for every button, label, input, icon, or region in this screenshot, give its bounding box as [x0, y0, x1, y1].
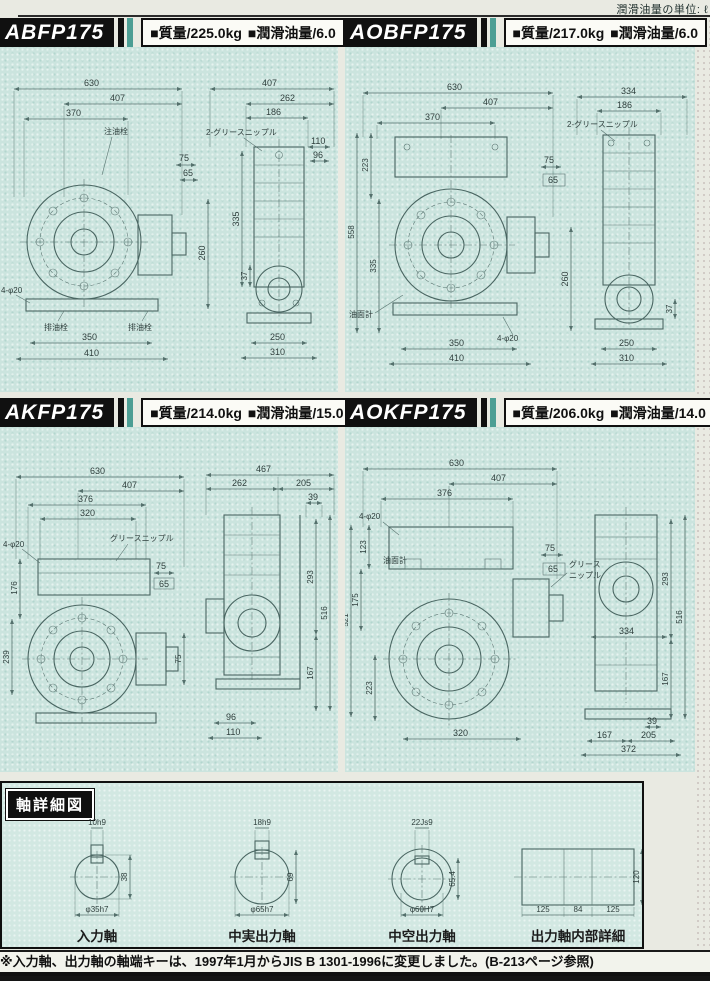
oil-label: ■潤滑油量/15.0	[248, 403, 344, 423]
top-divider	[18, 15, 710, 17]
dim-label: 410	[84, 348, 99, 358]
dim-label: 75	[156, 561, 166, 571]
dim-label: 186	[617, 100, 632, 110]
dim-label: 125	[606, 905, 620, 914]
header-bar-teal	[127, 18, 133, 47]
dim-label: 558	[347, 225, 356, 239]
dim-label: 310	[270, 347, 285, 357]
holes-label: 4-φ20	[3, 540, 25, 549]
front-view: 630 407 370 注油栓 75 65 260 排油栓 排油栓 350 41…	[1, 78, 208, 359]
mass-label: ■質量/217.0kg	[513, 23, 605, 43]
dim-label: 167	[597, 730, 612, 740]
dim-label: 320	[80, 508, 95, 518]
dim-label: 65	[548, 564, 558, 574]
dim-label: 96	[313, 150, 323, 160]
front-view: 630 407 376 320 グリースニップル 4-φ20 176 239 7…	[2, 466, 184, 723]
dim-label: 521	[345, 613, 350, 627]
dim-label: 410	[449, 353, 464, 363]
shaft-label: 出力軸内部詳細	[531, 928, 626, 944]
model-name: AOBFP175	[345, 18, 477, 47]
dim-label: 65	[159, 579, 169, 589]
grease-nipple-label: 2-グリースニップル	[206, 127, 277, 137]
dim-label: 407	[122, 480, 137, 490]
side-view: 334 186 2-グリースニップル 37 250 310	[567, 86, 687, 364]
grease-nipple-label: グリース	[569, 559, 601, 569]
dim-label: 65.4	[448, 871, 457, 887]
dim-label: 370	[66, 108, 81, 118]
dim-label: 75	[545, 543, 555, 553]
side-view: 467 262 205 39 293 516 167 96 110	[206, 464, 334, 738]
dim-label: 630	[84, 78, 99, 88]
header-bar-black	[118, 18, 124, 47]
model-name: ABFP175	[0, 18, 114, 47]
dim-label: 69	[286, 872, 295, 881]
shaft-diagrams: 10h9 38 φ35h7 入力軸 18h9 69	[2, 815, 642, 947]
dim-label: 407	[110, 93, 125, 103]
oil-label: ■潤滑油量/6.0	[610, 23, 698, 43]
dim-label: 223	[365, 681, 374, 695]
dim-label: 260	[560, 271, 570, 286]
dim-label: 110	[226, 727, 240, 737]
input-shaft-diagram: 10h9 38 φ35h7 入力軸	[70, 818, 132, 944]
dim-label: 223	[361, 158, 370, 172]
dim-label: φ60H7	[410, 905, 435, 914]
front-view: 630 407 370 223 558 335 75 65 260 油面計 4-…	[347, 82, 571, 364]
dim-label: 120	[632, 870, 641, 884]
dim-label: 467	[256, 464, 271, 474]
drawing-panel-abfp175: 630 407 370 注油栓 75 65 260 排油栓 排油栓 350 41…	[0, 47, 338, 392]
dim-label: 407	[491, 473, 506, 483]
drain-plug-label: 排油栓	[128, 322, 152, 332]
dim-label: 22Js9	[411, 818, 433, 827]
mass-label: ■質量/214.0kg	[150, 403, 242, 423]
dim-label: 376	[78, 494, 93, 504]
oil-fill-plug-label: 注油栓	[104, 126, 128, 136]
drawing-panel-aokfp175: 630 407 376 4-φ20 油面計 123 175 521 223 75…	[345, 427, 695, 772]
spec-box: ■質量/225.0kg ■潤滑油量/6.0	[141, 18, 345, 47]
shaft-detail-section: 軸詳細図 10h9 38 φ35h7 入力軸 18h9	[0, 781, 644, 949]
dim-label: φ65h7	[251, 905, 275, 914]
dim-label: 334	[619, 626, 634, 636]
dim-label: 350	[449, 338, 464, 348]
dim-label: 250	[270, 332, 285, 342]
footnote: ※入力軸、出力軸の軸端キーは、1997年1月からJIS B 1301-1996に…	[0, 950, 710, 976]
dim-label: 96	[226, 712, 236, 722]
dim-label: 84	[574, 905, 583, 914]
dim-label: 516	[320, 606, 329, 620]
dim-label: 335	[231, 211, 241, 226]
shaft-label: 中空出力軸	[388, 928, 456, 944]
page-bottom-edge	[0, 976, 710, 981]
dim-label: 630	[90, 466, 105, 476]
drain-plug-label: 排油栓	[44, 322, 68, 332]
dim-label: 10h9	[88, 818, 106, 827]
dim-label: 350	[82, 332, 97, 342]
dim-label: 123	[359, 540, 368, 554]
akfp175-drawing: 630 407 376 320 グリースニップル 4-φ20 176 239 7…	[0, 427, 338, 772]
model-header-aokfp175: AOKFP175 ■質量/206.0kg ■潤滑油量/14.0	[345, 398, 710, 427]
dim-label: 334	[621, 86, 636, 96]
dim-label: 376	[437, 488, 452, 498]
dim-label: 250	[619, 338, 634, 348]
solid-output-shaft-diagram: 18h9 69 φ65h7 中実出力軸	[228, 818, 296, 944]
grease-nipple-label: 2-グリースニップル	[567, 119, 638, 129]
dim-label: 65	[548, 175, 558, 185]
dim-label: 186	[266, 107, 281, 117]
dim-label: 167	[661, 672, 670, 686]
header-bar-black	[481, 18, 487, 47]
header-bar-black	[481, 398, 487, 427]
model-name: AKFP175	[0, 398, 114, 427]
dim-label: 335	[369, 259, 378, 273]
dim-label: 167	[306, 666, 315, 680]
holes-label: 4-φ20	[1, 286, 23, 295]
dim-label: 407	[483, 97, 498, 107]
grease-nipple-label: グリースニップル	[110, 533, 174, 543]
header-bar-teal	[490, 398, 496, 427]
dim-label: 75	[544, 155, 554, 165]
dim-label: 75	[174, 654, 183, 663]
dim-label: 176	[10, 581, 19, 595]
page-right-margin	[695, 18, 710, 950]
shaft-label: 中実出力軸	[228, 928, 296, 944]
mass-label: ■質量/206.0kg	[513, 403, 605, 423]
dim-label: 75	[179, 153, 189, 163]
header-bar-black	[118, 398, 124, 427]
header-bar-teal	[127, 398, 133, 427]
shaft-label: 入力軸	[77, 928, 118, 944]
oil-label: ■潤滑油量/14.0	[610, 403, 706, 423]
dim-label: 175	[351, 593, 360, 607]
dim-label: 260	[197, 245, 207, 260]
dim-label: 262	[232, 478, 247, 488]
model-header-akfp175: AKFP175 ■質量/214.0kg ■潤滑油量/15.0	[0, 398, 353, 427]
model-header-aobfp175: AOBFP175 ■質量/217.0kg ■潤滑油量/6.0	[345, 18, 707, 47]
dim-label: 205	[296, 478, 311, 488]
dim-label: 39	[308, 492, 318, 502]
dim-label: 65	[183, 168, 193, 178]
spec-box: ■質量/206.0kg ■潤滑油量/14.0	[504, 398, 710, 427]
side-view: 407 262 186 2-グリースニップル 110 96 335 37 250…	[206, 78, 334, 358]
model-header-abfp175: ABFP175 ■質量/225.0kg ■潤滑油量/6.0	[0, 18, 345, 47]
spec-box: ■質量/217.0kg ■潤滑油量/6.0	[504, 18, 708, 47]
dim-label: 516	[675, 610, 684, 624]
dim-label: 293	[306, 570, 315, 584]
mass-label: ■質量/225.0kg	[150, 23, 242, 43]
dim-label: 239	[2, 650, 11, 664]
dim-label: 407	[262, 78, 277, 88]
dim-label: 372	[621, 744, 636, 754]
dim-label: 370	[425, 112, 440, 122]
dim-label: 37	[665, 304, 674, 313]
dim-label: 110	[311, 136, 325, 146]
dim-label: 630	[447, 82, 462, 92]
dim-label: 293	[661, 572, 670, 586]
dim-label: φ35h7	[86, 905, 110, 914]
side-view: 334 293 516 167 39 167 205 372	[581, 507, 685, 755]
spec-box: ■質量/214.0kg ■潤滑油量/15.0	[141, 398, 352, 427]
abfp175-drawing: 630 407 370 注油栓 75 65 260 排油栓 排油栓 350 41…	[0, 47, 338, 392]
aokfp175-drawing: 630 407 376 4-φ20 油面計 123 175 521 223 75…	[345, 427, 695, 772]
drawing-panel-akfp175: 630 407 376 320 グリースニップル 4-φ20 176 239 7…	[0, 427, 338, 772]
aobfp175-drawing: 630 407 370 223 558 335 75 65 260 油面計 4-…	[345, 47, 695, 392]
dim-label: 205	[641, 730, 656, 740]
grease-nipple-label: ニップル	[569, 571, 601, 580]
hollow-output-shaft-diagram: 22Js9 65.4 φ60H7 中空出力軸	[388, 818, 458, 944]
dim-label: 39	[647, 716, 657, 726]
oil-gauge-label: 油面計	[383, 555, 407, 565]
oil-label: ■潤滑油量/6.0	[248, 23, 336, 43]
holes-label: 4-φ20	[359, 512, 381, 521]
holes-label: 4-φ20	[497, 334, 519, 343]
dim-label: 320	[453, 728, 468, 738]
header-bar-teal	[490, 18, 496, 47]
dim-label: 630	[449, 458, 464, 468]
dim-label: 37	[240, 271, 249, 280]
dim-label: 18h9	[253, 818, 271, 827]
dim-label: 125	[536, 905, 550, 914]
dim-label: 310	[619, 353, 634, 363]
model-name: AOKFP175	[345, 398, 477, 427]
front-view: 630 407 376 4-φ20 油面計 123 175 521 223 75…	[345, 458, 601, 739]
dim-label: 38	[120, 872, 129, 881]
dim-label: 262	[280, 93, 295, 103]
drawing-panel-aobfp175: 630 407 370 223 558 335 75 65 260 油面計 4-…	[345, 47, 695, 392]
oil-gauge-label: 油面計	[349, 309, 373, 319]
output-shaft-internal-diagram: 120 125 84 125 出力軸内部詳細	[514, 849, 642, 944]
